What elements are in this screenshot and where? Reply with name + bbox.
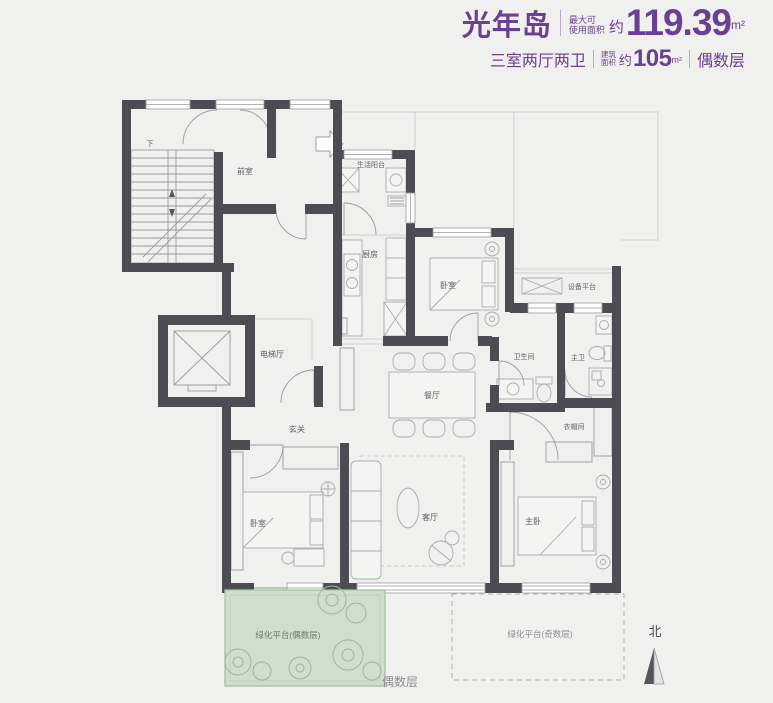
label-bedroom-left: 卧室 (250, 518, 266, 528)
elevator-shaft (174, 331, 230, 391)
compass: 北 (644, 624, 664, 684)
label-bathroom: 卫生间 (514, 352, 535, 361)
floorplan-page: 光年岛 最大可 使用面积 约 119.39 m² 三室两厅两卫 建筑 面积 约 … (0, 0, 773, 703)
living-furniture (351, 456, 464, 579)
entry-doors (183, 110, 343, 403)
equipment-platform (514, 269, 612, 294)
header-line-2: 三室两厅两卫 建筑 面积 约 105 m² 偶数层 (462, 47, 745, 71)
bathroom-fixtures (497, 361, 552, 402)
max-area-label: 最大可 使用面积 (569, 15, 605, 35)
built-area-label: 建筑 面积 (601, 51, 616, 67)
north-label: 北 (648, 624, 661, 639)
window (344, 150, 392, 159)
label-cloakroom: 衣帽间 (564, 422, 585, 431)
green-platform-odd: 绿化平台(奇数层) (452, 594, 624, 680)
built-area-value: 105 (633, 48, 672, 70)
green-platform-even: 绿化平台(偶数层) (225, 586, 385, 686)
project-title: 光年岛 (462, 2, 552, 44)
approx-char: 约 (609, 16, 624, 37)
label-master-bath: 主卫 (571, 353, 585, 362)
footer-floor-parity: 偶数层 (382, 674, 418, 689)
floorplan-drawing: 下 (0, 0, 773, 703)
label-master-bedroom: 主卧 (525, 516, 541, 526)
built-area-unit: m² (671, 55, 682, 65)
window (528, 303, 556, 313)
label-elevator-hall: 电梯厅 (260, 349, 284, 359)
cloakroom-fixtures (510, 406, 612, 462)
window (146, 100, 190, 109)
header-divider-3 (689, 50, 690, 68)
window (290, 100, 330, 109)
header-line-1: 光年岛 最大可 使用面积 约 119.39 m² (462, 2, 745, 44)
north-arrow-light-half (654, 648, 664, 684)
max-area-value: 119.39 (626, 5, 731, 41)
laundry-balcony-fixtures (337, 168, 406, 235)
header: 光年岛 最大可 使用面积 约 119.39 m² 三室两厅两卫 建筑 面积 约 … (462, 2, 745, 71)
stair-down-label: 下 (147, 140, 154, 148)
label-entry: 玄关 (289, 424, 305, 434)
header-divider-1 (560, 10, 561, 36)
north-arrow-dark-half (644, 648, 654, 684)
floor-parity: 偶数层 (697, 47, 745, 71)
dining-furniture (340, 348, 475, 437)
master-bedroom-furniture (501, 462, 610, 569)
green-platform-odd-label: 绿化平台(奇数层) (507, 629, 572, 639)
window (574, 303, 602, 313)
window (522, 583, 590, 593)
header-divider-2 (593, 50, 594, 68)
label-bedroom-top: 卧室 (440, 280, 456, 290)
label-equipment-platform: 设备平台 (568, 282, 596, 291)
green-platform-even-label: 绿化平台(偶数层) (255, 630, 320, 640)
approx-char-2: 约 (619, 50, 632, 69)
bedroom-top-furniture (430, 242, 499, 341)
label-kitchen: 厨房 (362, 249, 378, 259)
label-front-room: 前室 (237, 166, 253, 176)
layout-text: 三室两厅两卫 (490, 47, 586, 71)
label-living: 客厅 (422, 512, 438, 522)
window (216, 100, 264, 109)
label-dining: 餐厅 (424, 391, 440, 400)
window (433, 228, 491, 237)
stairwell: 下 (131, 140, 214, 263)
max-area-unit: m² (731, 18, 745, 32)
window (406, 193, 415, 223)
label-life-balcony: 生活阳台 (357, 160, 385, 169)
stair-arrow-down (169, 209, 175, 217)
